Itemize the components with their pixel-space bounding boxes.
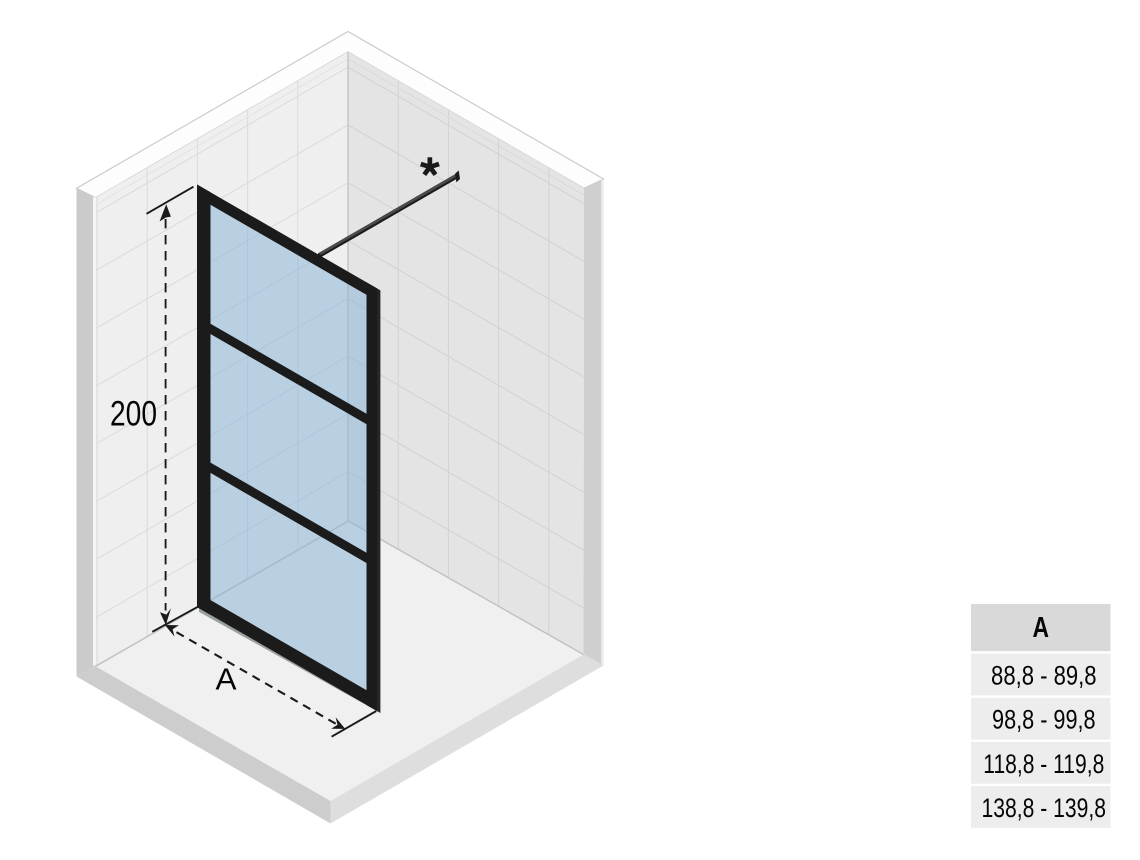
- svg-text:A: A: [1033, 612, 1050, 644]
- svg-text:118,8 - 119,8: 118,8 - 119,8: [983, 749, 1104, 779]
- svg-text:138,8 - 139,8: 138,8 - 139,8: [982, 793, 1107, 823]
- svg-text:A: A: [216, 663, 238, 697]
- svg-text:200: 200: [110, 393, 157, 433]
- svg-text:88,8 - 89,8: 88,8 - 89,8: [991, 661, 1097, 691]
- svg-text:98,8 - 99,8: 98,8 - 99,8: [992, 705, 1096, 735]
